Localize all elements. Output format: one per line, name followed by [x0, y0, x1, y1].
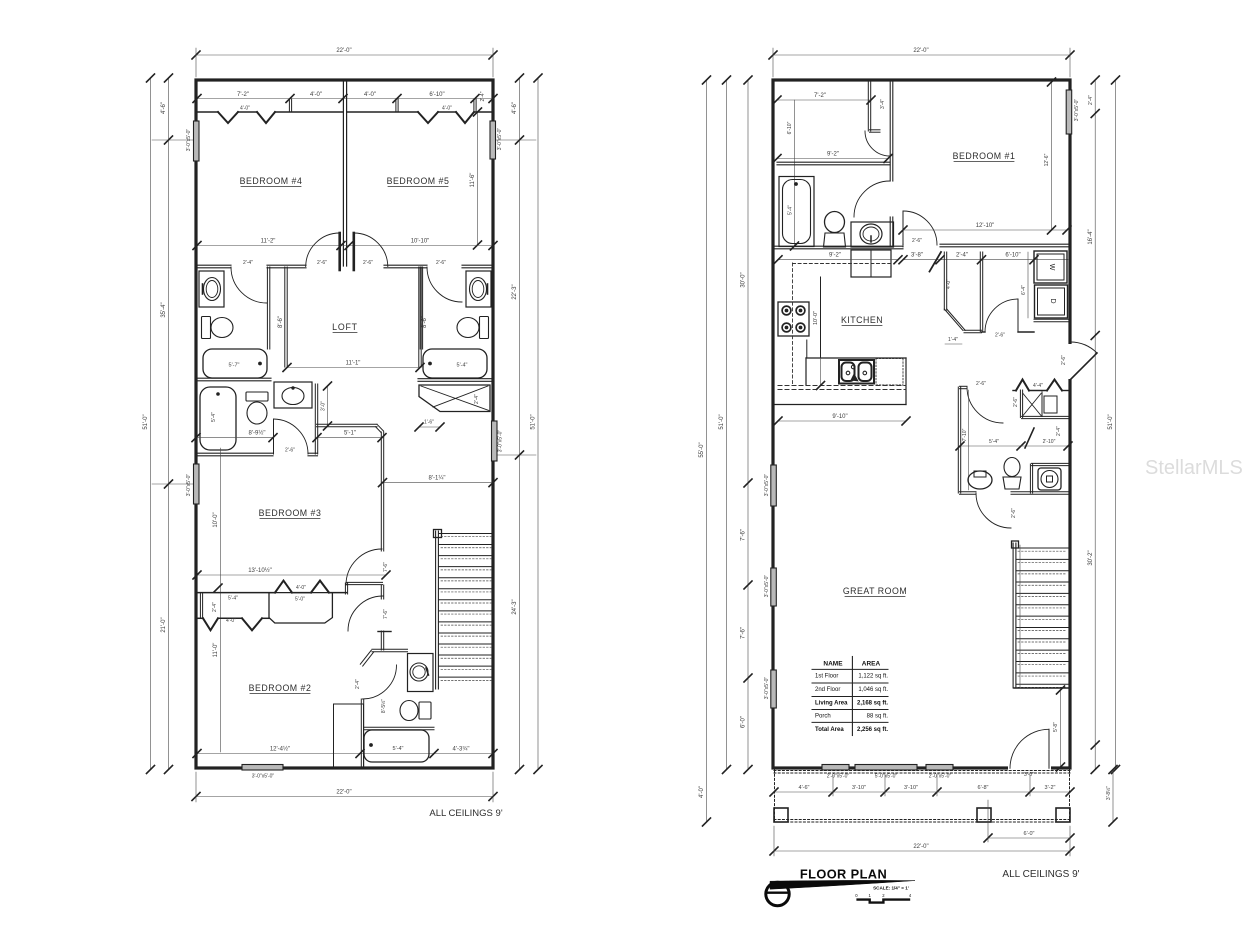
svg-text:2,256 sq ft.: 2,256 sq ft. — [857, 727, 888, 733]
svg-text:ALL CEILINGS 9': ALL CEILINGS 9' — [1002, 869, 1079, 880]
svg-text:8'-6": 8'-6" — [422, 316, 428, 328]
svg-text:5'-4": 5'-4" — [393, 746, 404, 752]
svg-text:7'-10": 7'-10" — [962, 428, 968, 441]
svg-text:1'-4": 1'-4" — [948, 337, 958, 343]
svg-text:21'-0": 21'-0" — [161, 617, 167, 632]
svg-text:11'-6": 11'-6" — [470, 173, 476, 188]
svg-text:10'-0": 10'-0" — [213, 512, 219, 527]
svg-text:5'-8": 5'-8" — [1053, 722, 1059, 732]
svg-text:2'-6": 2'-6" — [912, 238, 922, 244]
svg-text:2'-0"x5'-0": 2'-0"x5'-0" — [827, 774, 850, 780]
svg-text:6'-0": 6'-0" — [1024, 831, 1035, 837]
svg-text:12'-10": 12'-10" — [976, 223, 995, 229]
svg-text:2'-6": 2'-6" — [976, 381, 986, 387]
svg-text:3'-0": 3'-0" — [321, 401, 327, 411]
svg-text:35'-4": 35'-4" — [161, 302, 167, 317]
svg-text:5'-7": 5'-7" — [229, 363, 240, 369]
svg-text:30'-2": 30'-2" — [1088, 550, 1094, 565]
svg-text:SCALE: 1/4" = 1': SCALE: 1/4" = 1' — [873, 886, 909, 891]
svg-text:9'-2": 9'-2" — [829, 253, 841, 259]
svg-text:3'-0"x5'-0": 3'-0"x5'-0" — [1074, 99, 1080, 122]
svg-text:7'-6": 7'-6" — [383, 562, 389, 572]
svg-text:7'-2": 7'-2" — [237, 92, 249, 98]
svg-text:3'-8": 3'-8" — [911, 253, 923, 259]
svg-text:88 sq ft.: 88 sq ft. — [867, 714, 889, 720]
svg-text:4'-3¾": 4'-3¾" — [453, 747, 470, 753]
svg-text:4'-0": 4'-0" — [442, 106, 452, 112]
svg-text:3'-0"x5'-0": 3'-0"x5'-0" — [186, 129, 192, 152]
svg-text:NAME: NAME — [823, 660, 843, 667]
svg-text:1,122 sq ft.: 1,122 sq ft. — [858, 674, 888, 680]
svg-text:4'-6": 4'-6" — [161, 102, 167, 114]
svg-text:1st Floor: 1st Floor — [815, 674, 838, 680]
svg-text:11'-1": 11'-1" — [346, 361, 361, 367]
svg-text:13'-10½": 13'-10½" — [248, 567, 272, 574]
svg-text:22'-0": 22'-0" — [336, 790, 351, 796]
svg-text:8'-1¼": 8'-1¼" — [429, 476, 446, 482]
svg-text:3'-0"x5'-0": 3'-0"x5'-0" — [764, 575, 770, 598]
svg-text:4'-0": 4'-0" — [699, 786, 705, 798]
svg-text:2'-6": 2'-6" — [1061, 355, 1067, 365]
svg-text:4'-0": 4'-0" — [226, 618, 236, 624]
svg-text:5'-0"x5'-0": 5'-0"x5'-0" — [875, 774, 898, 780]
svg-text:3'-0"x5'-0": 3'-0"x5'-0" — [252, 774, 275, 780]
svg-text:BEDROOM #3: BEDROOM #3 — [259, 508, 322, 518]
svg-text:2'-6": 2'-6" — [1013, 397, 1019, 407]
svg-text:4'-0": 4'-0" — [240, 106, 250, 112]
svg-text:51'-0": 51'-0" — [143, 414, 149, 429]
svg-text:55'-0": 55'-0" — [699, 442, 705, 457]
svg-text:5'-4": 5'-4" — [228, 596, 238, 602]
svg-text:2'-4": 2'-4" — [355, 679, 361, 689]
svg-text:1,046 sq ft.: 1,046 sq ft. — [858, 687, 888, 693]
svg-text:2'-4": 2'-4" — [212, 602, 218, 612]
svg-text:2'-0"x5'-0": 2'-0"x5'-0" — [929, 774, 952, 780]
svg-text:16'-4": 16'-4" — [1088, 229, 1094, 244]
svg-text:3'-0"x5'-0": 3'-0"x5'-0" — [186, 474, 192, 497]
svg-text:5'-0": 5'-0" — [295, 597, 305, 603]
svg-text:7'-2": 7'-2" — [814, 93, 826, 99]
svg-text:Living Area: Living Area — [815, 701, 848, 707]
svg-text:3'-0"x5'-0": 3'-0"x5'-0" — [764, 474, 770, 497]
svg-text:22'-3": 22'-3" — [512, 284, 518, 299]
svg-text:1'-6": 1'-6" — [424, 420, 434, 426]
svg-text:2'-6": 2'-6" — [285, 448, 295, 454]
svg-text:8'-9½": 8'-9½" — [249, 430, 266, 437]
svg-text:5'-4": 5'-4" — [457, 363, 468, 369]
svg-text:3'-10": 3'-10" — [852, 785, 866, 791]
svg-text:51'-0": 51'-0" — [531, 414, 537, 429]
svg-text:3'-0"x5'-0": 3'-0"x5'-0" — [497, 128, 503, 151]
svg-text:5'-4": 5'-4" — [788, 205, 794, 215]
svg-text:Total Area: Total Area — [815, 727, 844, 733]
svg-text:4'-4": 4'-4" — [1033, 383, 1043, 389]
svg-text:2nd Floor: 2nd Floor — [815, 687, 840, 693]
svg-text:BEDROOM #2: BEDROOM #2 — [249, 683, 312, 693]
svg-text:3'-2": 3'-2" — [1045, 785, 1056, 791]
svg-text:2'-4": 2'-4" — [474, 394, 480, 404]
svg-text:3'-0"x5'-0": 3'-0"x5'-0" — [498, 430, 504, 453]
svg-text:10'-0": 10'-0" — [813, 311, 819, 325]
svg-text:12'-6": 12'-6" — [1044, 153, 1050, 166]
svg-text:BEDROOM #4: BEDROOM #4 — [240, 176, 303, 186]
svg-text:LOFT: LOFT — [332, 322, 358, 332]
svg-text:24'-3": 24'-3" — [512, 599, 518, 614]
svg-text:8'-5½": 8'-5½" — [380, 699, 387, 713]
svg-text:22'-0": 22'-0" — [913, 844, 928, 850]
svg-text:BEDROOM #5: BEDROOM #5 — [387, 176, 450, 186]
svg-text:2,168 sq ft.: 2,168 sq ft. — [857, 701, 888, 707]
svg-text:4'-0": 4'-0" — [946, 279, 952, 289]
svg-text:6'-8": 6'-8" — [978, 785, 989, 791]
svg-text:2'-4": 2'-4" — [243, 260, 253, 266]
svg-text:2'-6": 2'-6" — [363, 260, 373, 266]
svg-text:4'-6": 4'-6" — [512, 102, 518, 114]
svg-text:GREAT ROOM: GREAT ROOM — [843, 586, 907, 596]
svg-text:51'-0": 51'-0" — [1108, 414, 1114, 429]
svg-text:2'-4": 2'-4" — [956, 253, 968, 259]
svg-text:7'-6": 7'-6" — [741, 627, 747, 639]
svg-text:3'-8½": 3'-8½" — [1105, 786, 1112, 800]
svg-text:D: D — [1049, 298, 1056, 303]
svg-text:6'-0": 6'-0" — [741, 716, 747, 728]
svg-text:8'-6": 8'-6" — [278, 316, 284, 328]
svg-text:9'-10": 9'-10" — [832, 414, 847, 420]
svg-text:4'-6": 4'-6" — [799, 785, 810, 791]
svg-text:2'-6": 2'-6" — [317, 260, 327, 266]
svg-text:22'-0": 22'-0" — [913, 48, 928, 54]
svg-text:2'-4": 2'-4" — [480, 91, 486, 101]
svg-text:2'-10": 2'-10" — [1043, 439, 1056, 445]
svg-text:Porch: Porch — [815, 714, 831, 720]
svg-text:5'-4": 5'-4" — [211, 412, 217, 422]
svg-text:6'-4": 6'-4" — [1021, 285, 1027, 295]
svg-text:10'-10": 10'-10" — [411, 239, 430, 245]
svg-text:51'-0": 51'-0" — [719, 414, 725, 429]
svg-text:6'-10": 6'-10" — [787, 121, 793, 134]
svg-text:12'-4½": 12'-4½" — [270, 746, 290, 753]
svg-text:30'-0": 30'-0" — [741, 272, 747, 287]
svg-text:4'-0": 4'-0" — [310, 92, 322, 98]
svg-text:3'-0"x5'-0": 3'-0"x5'-0" — [764, 677, 770, 700]
svg-text:7'-6": 7'-6" — [741, 529, 747, 541]
svg-text:4'-0": 4'-0" — [296, 585, 306, 591]
svg-text:11'-2": 11'-2" — [261, 239, 276, 245]
svg-text:ALL CEILINGS 9': ALL CEILINGS 9' — [429, 808, 502, 819]
svg-text:BEDROOM #1: BEDROOM #1 — [953, 151, 1016, 161]
svg-text:2'-6": 2'-6" — [995, 333, 1005, 339]
svg-text:2'-4": 2'-4" — [1088, 95, 1094, 105]
svg-text:22'-0": 22'-0" — [336, 48, 351, 54]
svg-text:9'-2": 9'-2" — [827, 152, 839, 158]
svg-text:11'-0": 11'-0" — [213, 643, 219, 658]
svg-text:4'-0": 4'-0" — [364, 92, 376, 98]
svg-text:W: W — [1048, 264, 1055, 271]
svg-text:StellarMLS: StellarMLS — [1145, 457, 1242, 479]
svg-text:AREA: AREA — [862, 660, 881, 667]
svg-text:6'-10": 6'-10" — [1005, 253, 1020, 259]
svg-text:5'-1": 5'-1" — [344, 431, 356, 437]
svg-text:2'-4": 2'-4" — [1056, 426, 1062, 436]
svg-text:3'-4": 3'-4" — [880, 99, 886, 109]
svg-text:7'-6": 7'-6" — [383, 609, 389, 619]
svg-text:FLOOR PLAN: FLOOR PLAN — [800, 867, 887, 882]
svg-text:3'-10": 3'-10" — [904, 785, 918, 791]
svg-text:6'-10": 6'-10" — [429, 92, 444, 98]
svg-text:2'-6": 2'-6" — [1011, 508, 1017, 518]
svg-text:5'-4": 5'-4" — [989, 439, 999, 445]
svg-text:2'-6": 2'-6" — [436, 260, 446, 266]
svg-text:KITCHEN: KITCHEN — [841, 315, 883, 325]
